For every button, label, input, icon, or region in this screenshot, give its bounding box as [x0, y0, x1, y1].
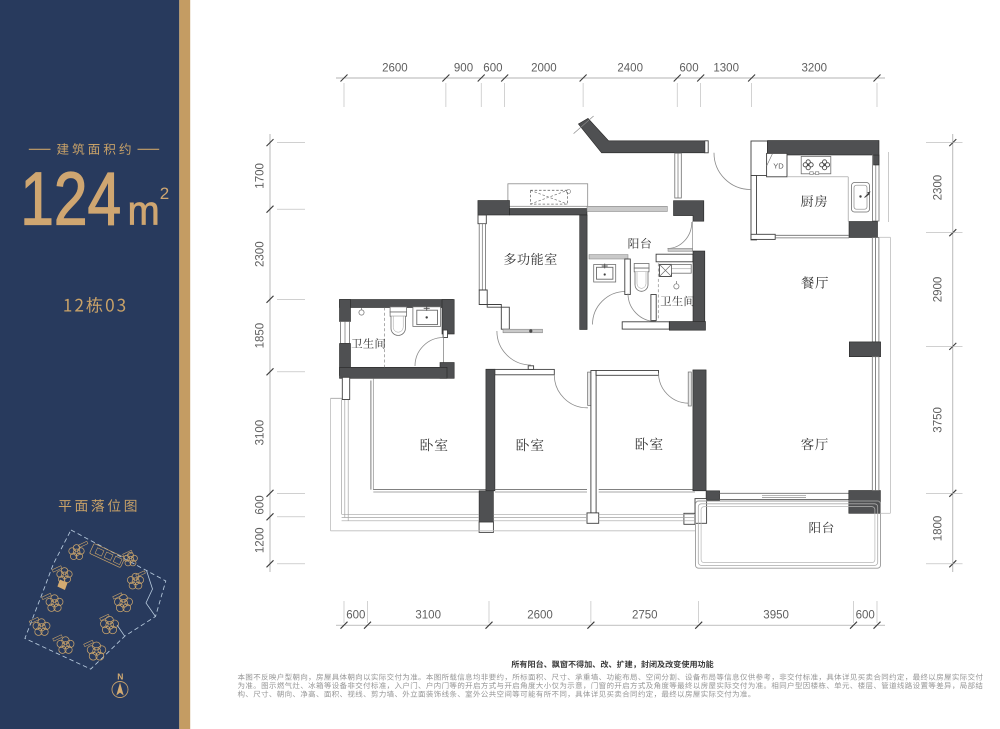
svg-text:600: 600: [856, 610, 875, 622]
svg-text:3950: 3950: [763, 610, 789, 622]
svg-text:1700: 1700: [255, 163, 267, 189]
svg-text:1300: 1300: [713, 63, 739, 75]
svg-text:YD: YD: [773, 162, 784, 171]
svg-text:2300: 2300: [255, 241, 267, 267]
svg-text:3750: 3750: [933, 407, 945, 433]
svg-text:1850: 1850: [255, 323, 267, 349]
svg-text:600: 600: [255, 495, 267, 514]
svg-text:2750: 2750: [632, 610, 658, 622]
svg-text:N: N: [117, 672, 123, 682]
svg-text:2: 2: [160, 184, 169, 203]
svg-text:124: 124: [20, 156, 121, 240]
svg-text:3200: 3200: [802, 63, 828, 75]
svg-text:2000: 2000: [531, 63, 557, 75]
svg-text:600: 600: [346, 610, 365, 622]
svg-text:600: 600: [483, 63, 502, 75]
svg-text:1800: 1800: [933, 516, 945, 542]
svg-text:2300: 2300: [933, 175, 945, 201]
svg-text:2600: 2600: [382, 63, 408, 75]
svg-text:2400: 2400: [617, 63, 643, 75]
svg-text:1200: 1200: [255, 528, 267, 554]
svg-text:600: 600: [679, 63, 698, 75]
svg-text:3100: 3100: [255, 420, 267, 446]
svg-text:2900: 2900: [933, 277, 945, 303]
svg-text:3100: 3100: [415, 610, 441, 622]
svg-text:m: m: [128, 187, 160, 233]
svg-text:2600: 2600: [527, 610, 553, 622]
svg-text:900: 900: [454, 63, 473, 75]
